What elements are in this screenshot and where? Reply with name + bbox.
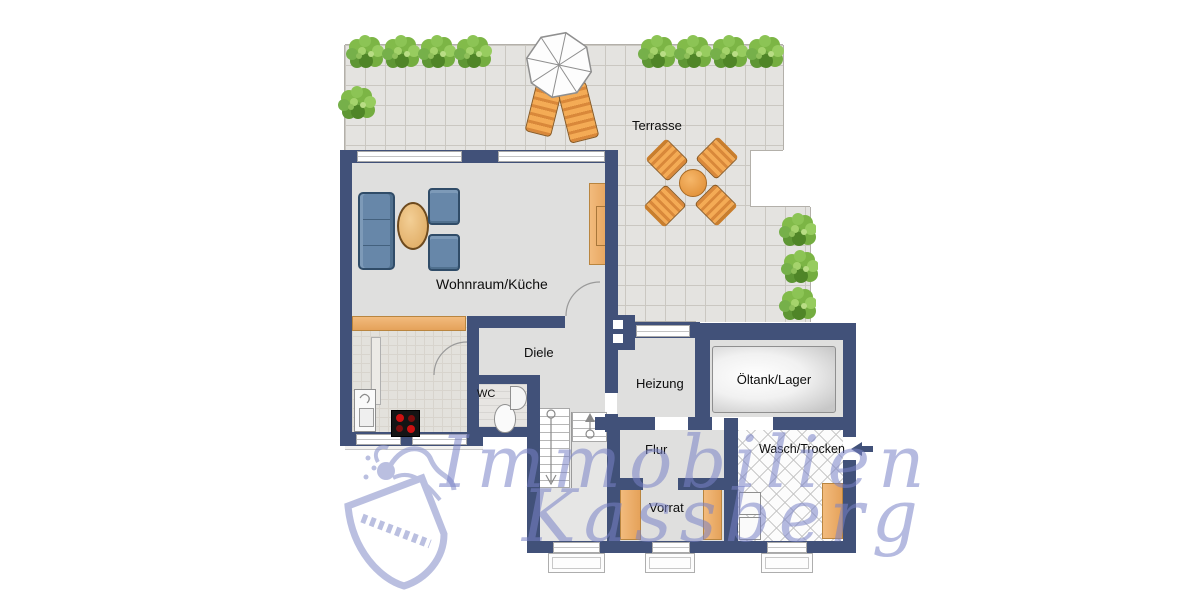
- wall-segment: [467, 328, 479, 438]
- window: [357, 151, 462, 162]
- wall-segment: [724, 418, 738, 543]
- room-label-diele: Diele: [524, 345, 554, 360]
- wall-segment: [678, 478, 724, 490]
- wall-segment: [605, 348, 618, 393]
- kitchen-counter-icon: [352, 316, 466, 331]
- window: [767, 542, 807, 553]
- crest-watermark-icon: [330, 438, 465, 596]
- plant-bush-icon: [673, 34, 713, 74]
- kitchen-sink-icon: [354, 389, 376, 432]
- parasol-icon: [524, 30, 594, 100]
- plant-bush-icon: [337, 85, 377, 125]
- wall-segment: [527, 427, 540, 553]
- room-label-wohnraum: Wohnraum/Küche: [436, 276, 548, 292]
- terrace-edge: [750, 150, 783, 151]
- chimney-flue: [613, 334, 623, 343]
- wall-segment: [467, 316, 565, 328]
- room-label-flur: Flur: [645, 442, 667, 457]
- window: [553, 542, 600, 553]
- window: [636, 325, 690, 337]
- window: [652, 542, 690, 553]
- room-label-vorrat: Vorrat: [649, 500, 684, 515]
- armchair-icon: [428, 234, 460, 271]
- wall-segment: [843, 323, 856, 437]
- plant-bush-icon: [778, 212, 816, 250]
- shelf-icon: [620, 483, 641, 540]
- chimney-flue: [613, 320, 623, 329]
- wall-segment: [605, 150, 618, 318]
- oil-tank: Öltank/Lager: [712, 346, 836, 413]
- wall-segment: [607, 478, 643, 490]
- stove-icon: [391, 410, 420, 437]
- room-label-terrasse: Terrasse: [632, 118, 682, 133]
- bay-window: [645, 553, 695, 573]
- terrace-edge: [750, 151, 751, 207]
- wall-segment: [843, 460, 856, 553]
- plant-bush-icon: [453, 34, 493, 74]
- room-label-heizung: Heizung: [636, 376, 684, 391]
- sofa-icon: [358, 192, 395, 270]
- coffee-table-icon: [397, 202, 429, 250]
- plant-bush-icon: [745, 34, 785, 74]
- room-label-oeltank: Öltank/Lager: [737, 372, 811, 387]
- wall-segment: [695, 323, 856, 340]
- floor-plan-canvas: Öltank/Lager: [0, 0, 1200, 600]
- plant-bush-icon: [780, 249, 818, 287]
- bay-window: [548, 553, 605, 573]
- plant-bush-icon: [778, 286, 816, 324]
- window: [498, 151, 605, 162]
- plant-bush-icon: [417, 34, 457, 74]
- shelf-icon: [703, 483, 722, 540]
- terrace-table-icon: [679, 169, 707, 197]
- room-label-wc: WC: [477, 388, 495, 400]
- wall-segment: [695, 323, 710, 430]
- stair-railing: [571, 412, 572, 488]
- bay-window: [761, 553, 813, 573]
- wall-segment: [688, 417, 712, 430]
- plant-bush-icon: [709, 34, 749, 74]
- plant-bush-icon: [345, 34, 385, 74]
- laundry-counter-icon: [822, 483, 843, 539]
- armchair-icon: [428, 188, 460, 225]
- entrance-arrow-icon: [861, 446, 873, 452]
- plant-bush-icon: [637, 34, 677, 74]
- stairs-down-icon: [536, 408, 570, 488]
- wall-segment: [340, 150, 352, 446]
- room-label-wasch: Wasch/Trocken: [759, 442, 845, 456]
- plant-bush-icon: [381, 34, 421, 74]
- washer-dryer-icon: [739, 492, 761, 540]
- terrace-edge: [750, 206, 810, 207]
- wall-segment: [773, 417, 843, 430]
- wall-segment: [595, 417, 655, 430]
